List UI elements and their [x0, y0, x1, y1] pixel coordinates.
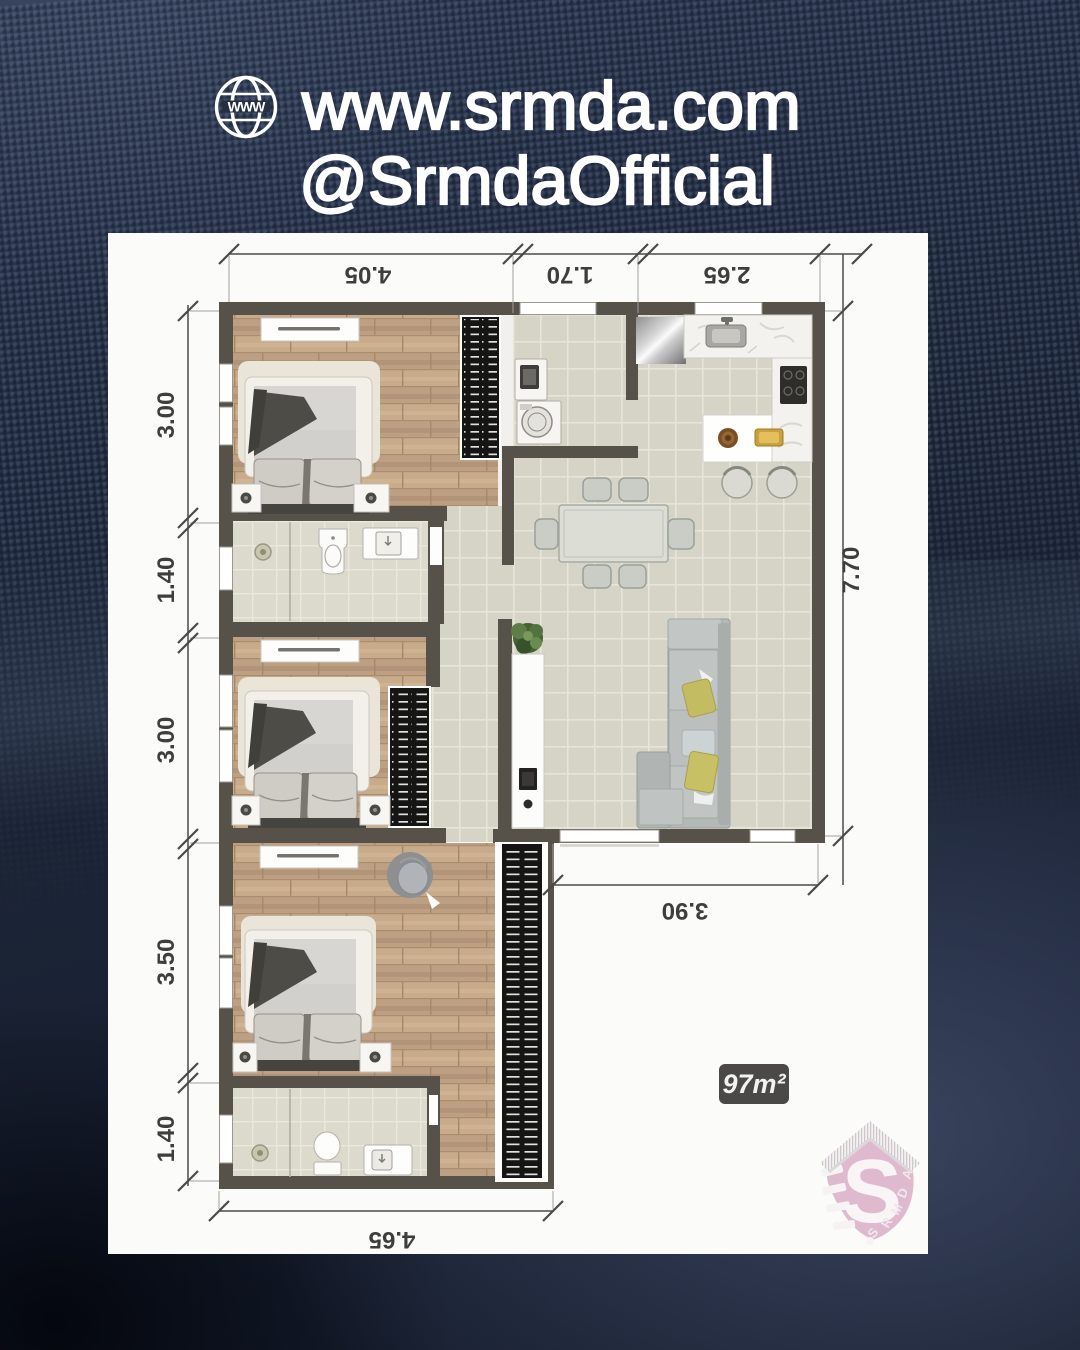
svg-text:S: S [842, 1142, 902, 1242]
svg-text:2.65: 2.65 [704, 261, 751, 288]
svg-text:4.05: 4.05 [345, 261, 392, 288]
svg-text:7.70: 7.70 [838, 547, 865, 594]
svg-text:3.00: 3.00 [153, 392, 180, 439]
svg-text:WWW: WWW [228, 99, 266, 115]
svg-text:1.70: 1.70 [547, 261, 594, 288]
svg-text:1.40: 1.40 [153, 557, 180, 604]
svg-text:1.40: 1.40 [153, 1116, 180, 1163]
svg-text:3.00: 3.00 [153, 717, 180, 764]
svg-text:4.65: 4.65 [369, 1226, 416, 1253]
svg-text:97m²: 97m² [722, 1069, 786, 1099]
svg-text:3.50: 3.50 [153, 939, 180, 986]
svg-text:3.90: 3.90 [662, 897, 709, 924]
